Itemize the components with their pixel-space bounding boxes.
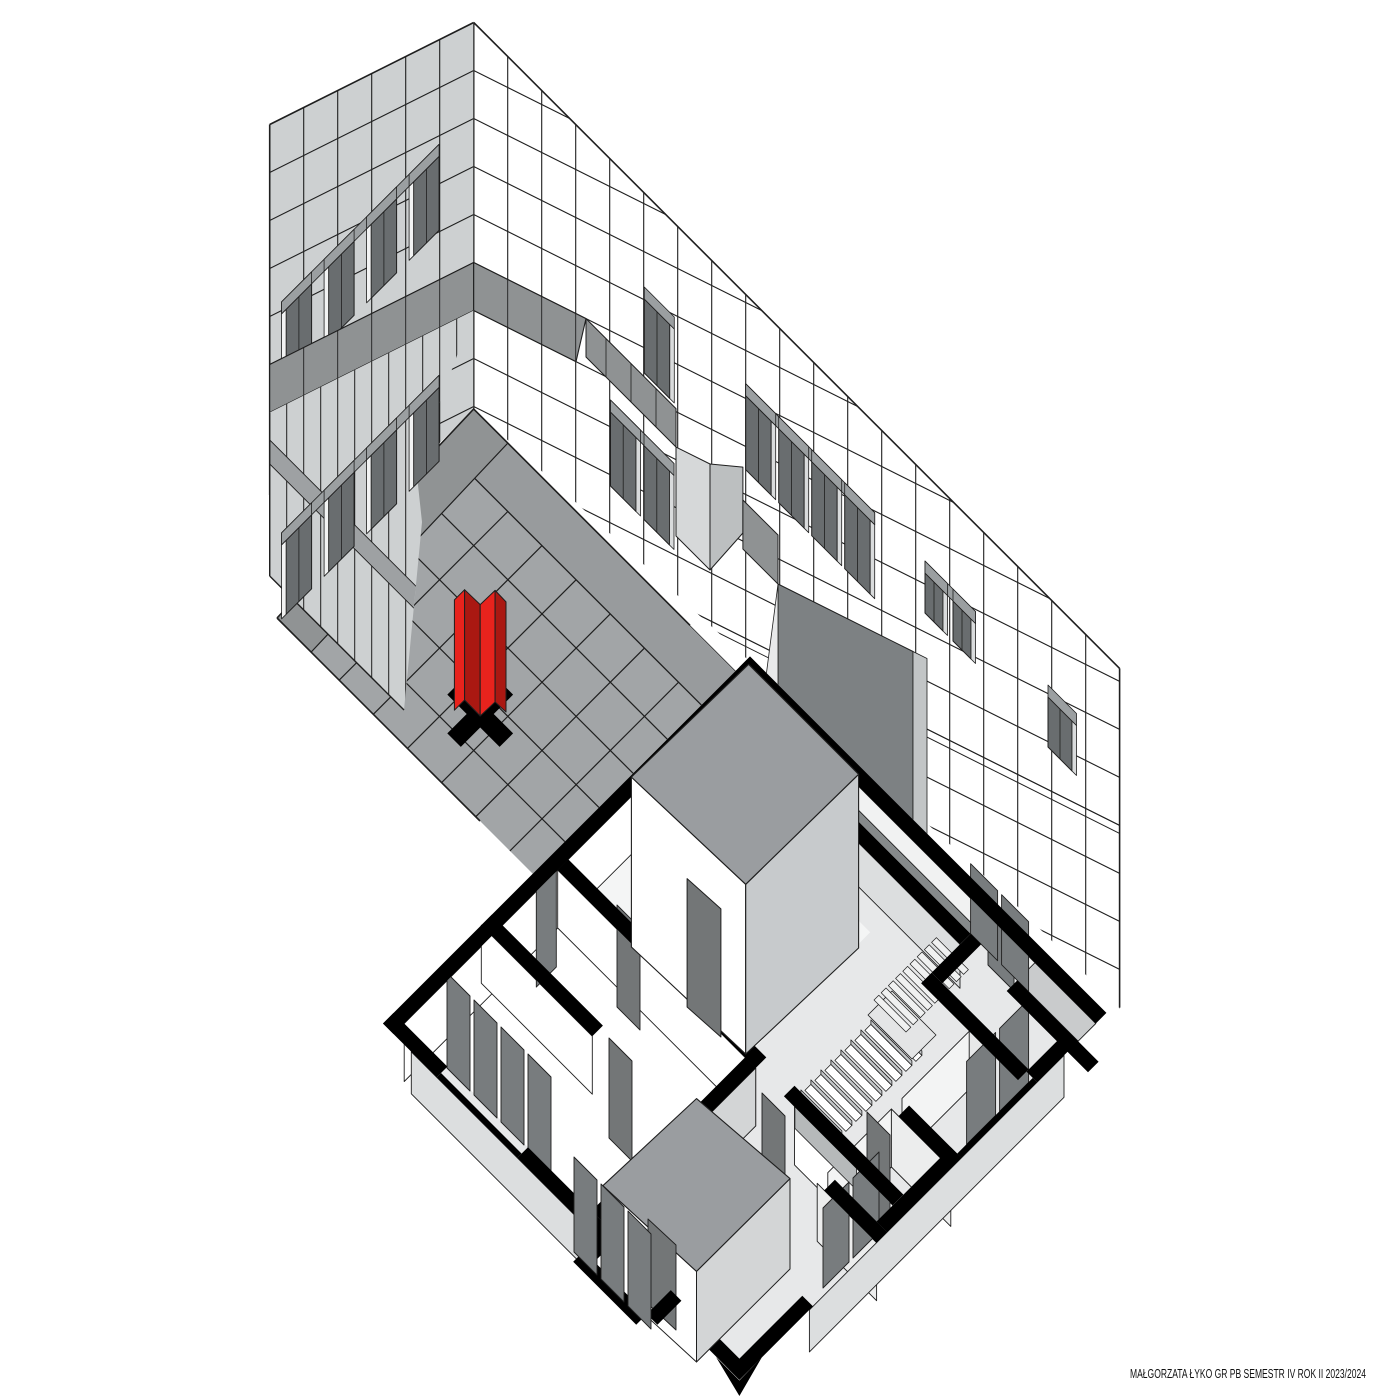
svg-text:MAŁGORZATA ŁYKO GR PB SEMESTR: MAŁGORZATA ŁYKO GR PB SEMESTR IV ROK II …	[1130, 1366, 1366, 1381]
